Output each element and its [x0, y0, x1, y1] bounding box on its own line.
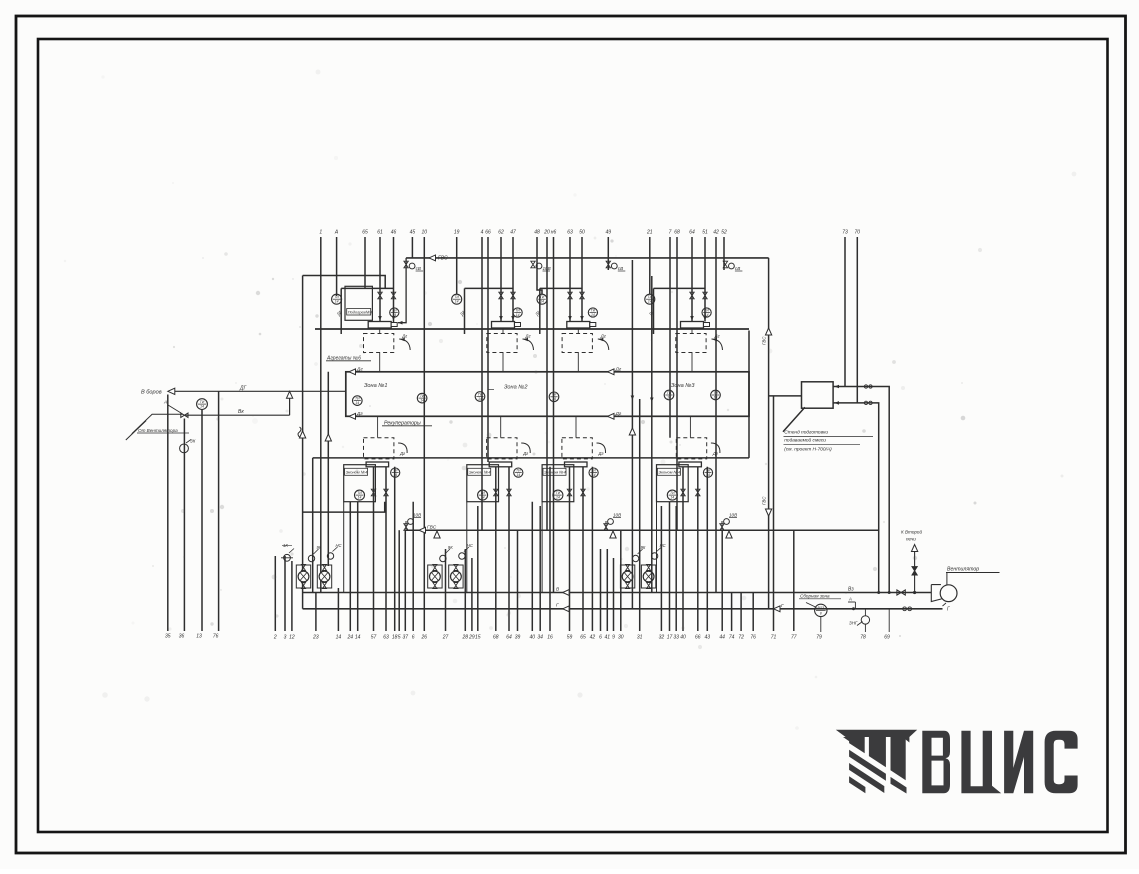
- svg-text:20: 20: [543, 230, 550, 236]
- svg-text:14: 14: [200, 405, 204, 409]
- svg-text:48: 48: [534, 230, 540, 236]
- svg-text:50: 50: [579, 230, 585, 236]
- svg-text:Дг: Дг: [401, 334, 407, 339]
- svg-text:14: 14: [667, 395, 671, 399]
- svg-text:Зона №3: Зона №3: [671, 383, 695, 389]
- svg-text:К Второй: К Второй: [901, 529, 922, 535]
- svg-text:66: 66: [695, 635, 701, 641]
- svg-text:печи: печи: [906, 537, 916, 542]
- svg-text:сВ: сВ: [416, 266, 421, 271]
- svg-text:Зона №2: Зона №2: [504, 385, 528, 391]
- svg-text:Дг: Дг: [356, 411, 363, 417]
- svg-text:7: 7: [669, 230, 672, 236]
- svg-text:ТИ: ТИ: [420, 394, 425, 398]
- svg-text:ТИ: ТИ: [393, 468, 398, 472]
- svg-text:42: 42: [713, 230, 719, 236]
- svg-text:12: 12: [289, 635, 295, 641]
- svg-text:47: 47: [510, 230, 516, 236]
- svg-text:14: 14: [336, 635, 342, 641]
- svg-text:Дг: Дг: [714, 334, 720, 339]
- svg-text:59: 59: [567, 635, 573, 641]
- svg-text:Дг: Дг: [522, 451, 528, 456]
- svg-text:27: 27: [442, 635, 449, 641]
- svg-text:ГВС: ГВС: [762, 496, 767, 505]
- svg-text:ДГ: ДГ: [239, 385, 248, 391]
- svg-text:39: 39: [515, 635, 521, 641]
- svg-text:Г: Г: [781, 603, 784, 609]
- svg-text:37: 37: [403, 635, 409, 641]
- svg-text:6: 6: [412, 635, 415, 641]
- svg-text:Вентилятор: Вентилятор: [947, 567, 979, 573]
- svg-text:9К: 9К: [317, 545, 322, 550]
- svg-text:Вз: Вз: [848, 586, 854, 592]
- svg-text:61: 61: [377, 230, 383, 236]
- svg-text:9К: 9К: [641, 545, 646, 550]
- svg-text:24: 24: [347, 635, 354, 641]
- svg-text:43: 43: [705, 635, 711, 641]
- svg-text:9: 9: [612, 635, 615, 641]
- svg-text:14: 14: [392, 313, 396, 317]
- svg-text:Дг: Дг: [615, 411, 622, 417]
- svg-text:71: 71: [771, 635, 777, 641]
- svg-text:35: 35: [165, 634, 171, 640]
- svg-text:Подогрев№4: Подогрев№4: [348, 310, 373, 315]
- svg-text:14: 14: [516, 473, 520, 477]
- svg-text:От Вентилятора: От Вентилятора: [138, 428, 178, 433]
- svg-text:ЗНГ: ЗНГ: [849, 621, 858, 626]
- svg-text:14: 14: [670, 496, 674, 500]
- svg-text:А: А: [163, 400, 167, 406]
- svg-text:ТИ: ТИ: [515, 308, 520, 312]
- svg-text:76: 76: [750, 635, 756, 641]
- svg-text:31: 31: [637, 635, 643, 641]
- svg-text:ГВС: ГВС: [762, 336, 767, 345]
- svg-text:14: 14: [481, 496, 485, 500]
- svg-text:ТИ: ТИ: [556, 491, 561, 495]
- svg-text:ТИ: ТИ: [713, 391, 718, 395]
- svg-text:ТИ: ТИ: [355, 396, 360, 400]
- svg-text:8: 8: [820, 611, 822, 615]
- svg-text:14: 14: [335, 300, 339, 304]
- svg-text:Эконом №4: Эконом №4: [544, 470, 567, 475]
- svg-text:РОЗ: РОЗ: [818, 606, 825, 610]
- svg-text:14: 14: [540, 300, 544, 304]
- svg-text:15: 15: [475, 635, 481, 641]
- svg-text:ТИ: ТИ: [334, 295, 339, 299]
- svg-text:В боров: В боров: [141, 389, 162, 395]
- svg-text:49: 49: [606, 230, 612, 236]
- svg-text:51: 51: [702, 230, 708, 236]
- svg-text:52: 52: [721, 230, 727, 236]
- svg-text:5: 5: [398, 635, 401, 641]
- svg-text:14: 14: [358, 496, 362, 500]
- svg-text:32: 32: [659, 635, 665, 641]
- svg-text:1: 1: [319, 230, 322, 236]
- svg-text:41: 41: [605, 635, 611, 641]
- svg-text:ТИ: ТИ: [591, 308, 596, 312]
- svg-text:НС: НС: [467, 543, 474, 548]
- svg-text:44: 44: [719, 635, 725, 641]
- svg-text:76: 76: [213, 634, 219, 640]
- svg-text:66: 66: [485, 230, 491, 236]
- svg-text:21: 21: [646, 230, 653, 236]
- svg-text:64: 64: [506, 635, 512, 641]
- svg-text:Дг: Дг: [712, 451, 718, 456]
- svg-text:Дг: Дг: [399, 451, 405, 456]
- svg-text:Дг: Дг: [598, 451, 604, 456]
- svg-text:2: 2: [273, 635, 277, 641]
- svg-text:73: 73: [842, 230, 848, 236]
- svg-text:ТИ: ТИ: [478, 392, 483, 396]
- svg-text:14: 14: [516, 313, 520, 317]
- svg-text:Дг: Дг: [525, 334, 531, 339]
- svg-text:Дг: Дг: [615, 367, 622, 373]
- svg-text:14: 14: [556, 496, 560, 500]
- svg-text:10: 10: [422, 230, 428, 236]
- svg-text:64: 64: [689, 230, 695, 236]
- svg-text:Стенд подготовки: Стенд подготовки: [784, 430, 828, 436]
- svg-text:65: 65: [362, 230, 368, 236]
- svg-text:17: 17: [667, 635, 673, 641]
- svg-text:Вк: Вк: [238, 409, 244, 415]
- svg-text:57: 57: [371, 635, 377, 641]
- svg-text:40: 40: [680, 635, 686, 641]
- svg-text:ТИ: ТИ: [670, 491, 675, 495]
- svg-text:36: 36: [179, 634, 185, 640]
- svg-text:29: 29: [468, 635, 475, 641]
- svg-text:3: 3: [284, 635, 287, 641]
- svg-text:сВ: сВ: [618, 266, 623, 271]
- svg-text:14: 14: [455, 300, 459, 304]
- svg-text:Дг: Дг: [356, 367, 363, 373]
- svg-text:14: 14: [552, 397, 556, 401]
- svg-text:Дг: Дг: [600, 334, 606, 339]
- svg-text:ТИ: ТИ: [540, 295, 545, 299]
- svg-text:Сборная зона: Сборная зона: [800, 594, 830, 599]
- svg-text:62: 62: [498, 230, 504, 236]
- svg-text:46: 46: [391, 230, 397, 236]
- svg-text:40: 40: [530, 635, 536, 641]
- svg-text:ТИ: ТИ: [392, 308, 397, 312]
- svg-text:78: 78: [860, 635, 866, 641]
- svg-text:Эконом №4: Эконом №4: [469, 470, 492, 475]
- svg-text:30: 30: [618, 635, 624, 641]
- svg-text:63: 63: [567, 230, 573, 236]
- svg-text:подаваемой смеси: подаваемой смеси: [784, 437, 826, 444]
- svg-text:10В: 10В: [729, 513, 737, 518]
- svg-text:45: 45: [410, 230, 416, 236]
- svg-text:10В: 10В: [543, 266, 551, 271]
- svg-text:77: 77: [791, 635, 797, 641]
- svg-text:23: 23: [312, 635, 319, 641]
- svg-text:74: 74: [729, 635, 735, 641]
- svg-text:ТИ: ТИ: [200, 400, 205, 404]
- svg-text:ГВС: ГВС: [438, 256, 448, 262]
- svg-text:ТИ: ТИ: [357, 491, 362, 495]
- svg-text:10В: 10В: [613, 513, 621, 518]
- svg-text:ТИ: ТИ: [480, 491, 485, 495]
- svg-text:14: 14: [478, 397, 482, 401]
- svg-text:26: 26: [421, 635, 428, 641]
- svg-text:13: 13: [196, 634, 202, 640]
- svg-text:28: 28: [462, 635, 469, 641]
- svg-text:14: 14: [591, 313, 595, 317]
- svg-text:н6: н6: [551, 230, 557, 236]
- svg-text:Зона №1: Зона №1: [364, 383, 387, 389]
- svg-text:68: 68: [674, 230, 680, 236]
- svg-text:79: 79: [816, 635, 822, 641]
- svg-text:69: 69: [884, 635, 890, 641]
- svg-text:ТИ: ТИ: [454, 295, 459, 299]
- svg-text:Г: Г: [556, 603, 559, 609]
- svg-text:ТИ: ТИ: [704, 308, 709, 312]
- svg-text:14: 14: [714, 395, 718, 399]
- svg-text:ГВС: ГВС: [427, 525, 437, 531]
- svg-text:14: 14: [705, 313, 709, 317]
- svg-text:42: 42: [590, 635, 596, 641]
- svg-text:Эконом №4: Эконом №4: [658, 470, 681, 475]
- svg-text:ТИ: ТИ: [516, 468, 521, 472]
- svg-text:(см. проект Н-700/А): (см. проект Н-700/А): [784, 447, 832, 453]
- svg-text:ТИ: ТИ: [552, 393, 557, 397]
- svg-text:70: 70: [855, 230, 861, 236]
- svg-text:14: 14: [355, 401, 359, 405]
- svg-text:34: 34: [537, 635, 543, 641]
- svg-text:9К: 9К: [448, 545, 453, 550]
- svg-text:сВ: сВ: [735, 266, 740, 271]
- svg-text:ТИ: ТИ: [667, 391, 672, 395]
- svg-text:А: А: [848, 597, 852, 602]
- svg-text:10В: 10В: [413, 513, 421, 518]
- svg-text:63: 63: [383, 635, 389, 641]
- svg-text:19: 19: [454, 230, 460, 236]
- svg-text:14: 14: [420, 399, 424, 403]
- svg-text:ЗК: ЗК: [190, 439, 196, 444]
- svg-text:6: 6: [599, 635, 602, 641]
- svg-text:14: 14: [355, 635, 361, 641]
- svg-text:НС: НС: [336, 543, 343, 548]
- svg-text:4: 4: [481, 230, 484, 236]
- svg-text:16: 16: [547, 635, 553, 641]
- svg-text:72: 72: [738, 635, 744, 641]
- svg-text:65: 65: [580, 635, 586, 641]
- svg-text:33: 33: [673, 635, 679, 641]
- svg-text:68: 68: [493, 635, 499, 641]
- svg-text:ТИ: ТИ: [706, 468, 711, 472]
- svg-text:А: А: [334, 230, 339, 236]
